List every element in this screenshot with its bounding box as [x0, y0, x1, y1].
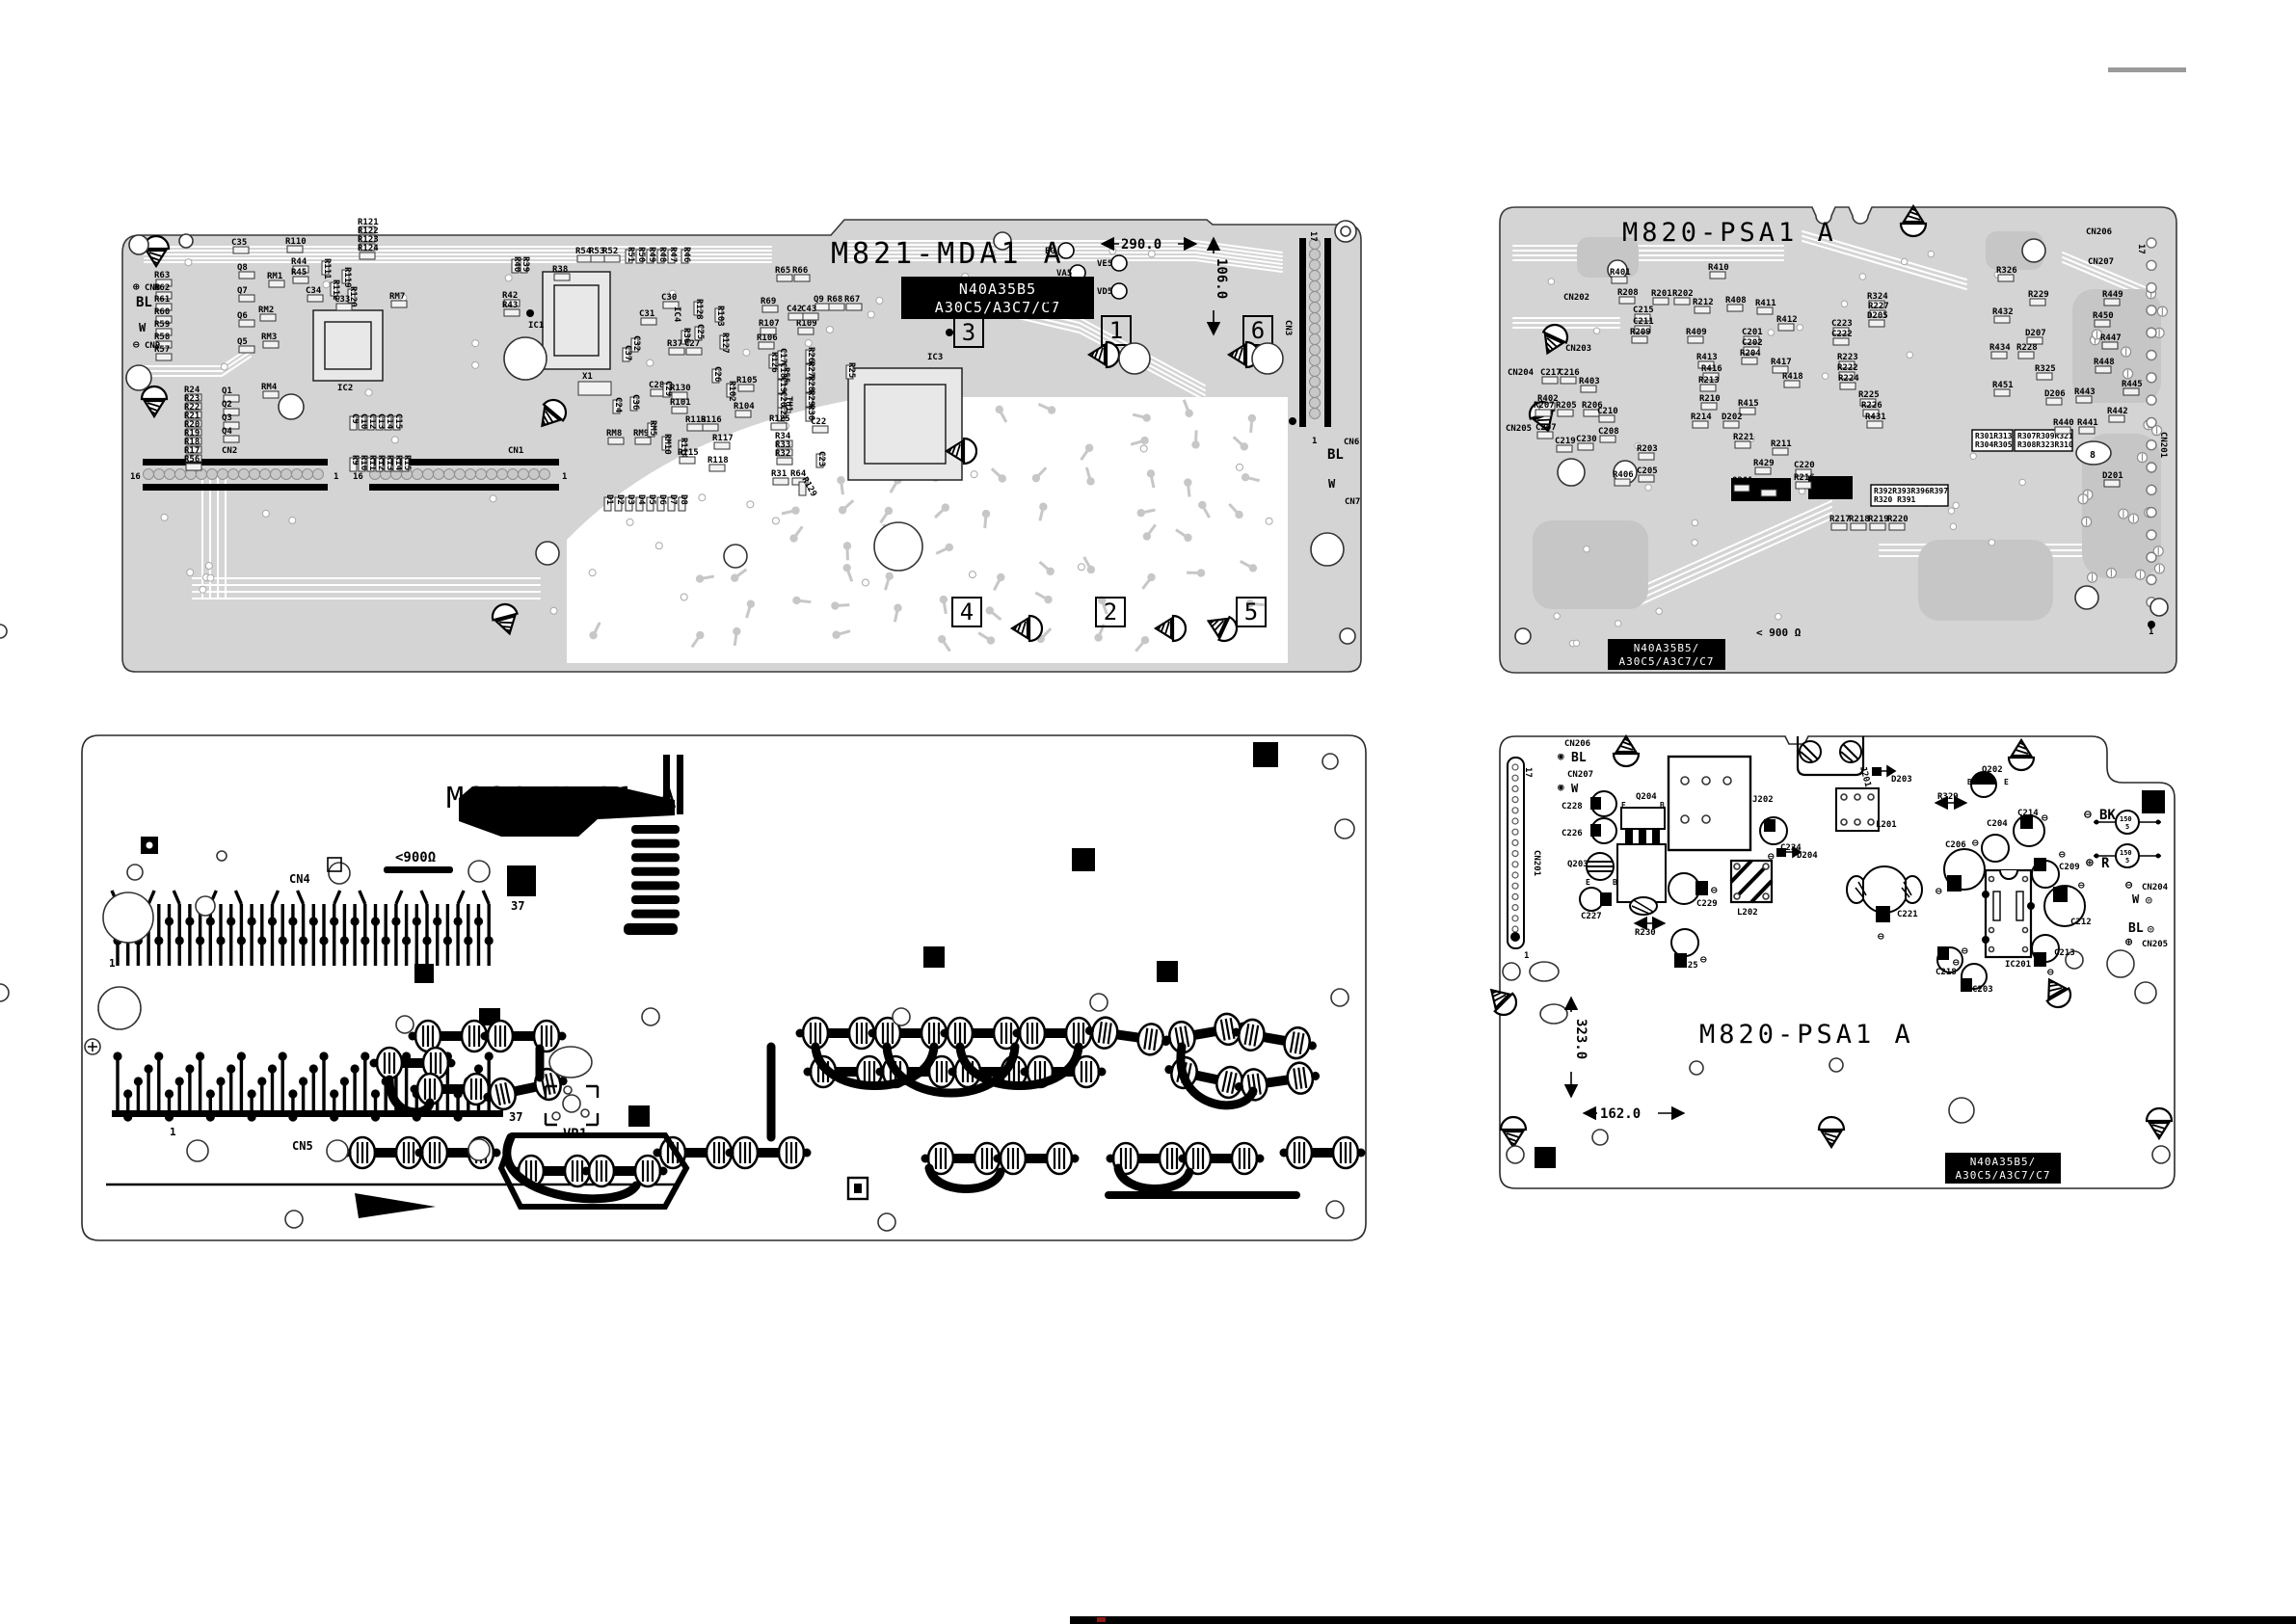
svg-text:R40: R40 — [512, 256, 521, 272]
svg-text:R435R436: R435R436 — [1811, 479, 1849, 488]
svg-text:C206: C206 — [1945, 840, 1966, 850]
svg-text:RM9: RM9 — [633, 429, 649, 439]
svg-text:R105: R105 — [736, 376, 758, 386]
svg-text:C211: C211 — [1633, 317, 1654, 327]
svg-text:⊖: ⊖ — [1936, 885, 1942, 897]
svg-text:C221: C221 — [1897, 910, 1918, 919]
svg-text:⊖: ⊖ — [133, 338, 140, 351]
svg-text:R403: R403 — [1579, 377, 1600, 386]
svg-text:⊖: ⊖ — [2125, 878, 2133, 892]
svg-text:B: B — [1967, 778, 1972, 786]
svg-text:CN4: CN4 — [289, 872, 310, 886]
svg-text:VA5: VA5 — [1056, 269, 1072, 279]
svg-text:3: 3 — [962, 319, 975, 346]
svg-text:C43: C43 — [801, 305, 816, 314]
svg-text:Q202: Q202 — [1982, 765, 2003, 775]
ohm-note-c: <900Ω — [395, 850, 436, 865]
svg-text:R442: R442 — [2107, 407, 2128, 416]
svg-text:R227: R227 — [1868, 302, 1889, 311]
svg-text:B: B — [1660, 801, 1665, 810]
svg-text:RM4: RM4 — [261, 383, 278, 392]
svg-text:C216: C216 — [1559, 368, 1580, 378]
svg-text:C34: C34 — [306, 286, 322, 296]
svg-text:BL: BL — [136, 295, 152, 310]
svg-text:RM5: RM5 — [648, 420, 657, 436]
svg-text:R230: R230 — [1635, 928, 1656, 938]
svg-text:C22: C22 — [811, 417, 826, 427]
svg-text:D6: D6 — [657, 494, 667, 505]
svg-text:C223: C223 — [1831, 319, 1853, 329]
page-bottom-bar — [1070, 1616, 2296, 1624]
svg-text:R111: R111 — [322, 258, 332, 280]
svg-text:R49: R49 — [647, 247, 656, 262]
svg-text:R392R393R396R397: R392R393R396R397 — [1874, 487, 1948, 495]
svg-text:C28: C28 — [649, 381, 664, 390]
ic-chip-ic2 — [313, 310, 383, 381]
svg-text:W: W — [1328, 477, 1336, 491]
svg-text:R219: R219 — [1868, 515, 1889, 524]
svg-text:R63: R63 — [154, 271, 170, 280]
svg-text:R229: R229 — [2028, 290, 2049, 300]
svg-text:IC4: IC4 — [672, 306, 681, 323]
svg-text:R308R323R310: R308R323R310 — [2017, 440, 2073, 449]
svg-text:162.0: 162.0 — [1600, 1106, 1641, 1122]
svg-text:R220: R220 — [1887, 515, 1909, 524]
svg-text:CN207: CN207 — [2088, 257, 2114, 267]
svg-text:CN8: CN8 — [145, 283, 160, 293]
svg-text:R412: R412 — [1776, 315, 1798, 325]
svg-text:R60: R60 — [154, 307, 170, 317]
svg-text:D7: D7 — [668, 494, 678, 505]
svg-text:R44: R44 — [291, 257, 307, 267]
svg-text:CN201: CN201 — [1532, 850, 1541, 876]
svg-text:◎: ◎ — [2148, 922, 2154, 935]
svg-text:C218: C218 — [1936, 968, 1957, 977]
svg-text:R45: R45 — [291, 268, 307, 278]
svg-text:C208: C208 — [1598, 427, 1619, 437]
svg-text:Q5: Q5 — [237, 337, 248, 347]
svg-text:R28: R28 — [806, 376, 815, 391]
svg-text:R42: R42 — [502, 291, 518, 301]
board-title-b: M820-PSA1 A — [1622, 218, 1837, 248]
svg-text:C229: C229 — [1696, 899, 1718, 909]
svg-text:DG: DG — [1044, 296, 1055, 306]
svg-text:R218: R218 — [1849, 515, 1870, 524]
svg-text:1: 1 — [562, 472, 567, 482]
svg-text:R325: R325 — [2035, 364, 2056, 374]
svg-text:R26: R26 — [806, 347, 815, 362]
svg-text:D8: D8 — [679, 494, 688, 505]
svg-text:CN5: CN5 — [292, 1139, 313, 1153]
svg-text:4: 4 — [960, 599, 974, 626]
svg-text:W: W — [139, 321, 147, 334]
svg-text:⊖: ⊖ — [2042, 812, 2048, 824]
svg-text:R15: R15 — [402, 455, 412, 470]
svg-text:⊖: ⊖ — [1972, 837, 1979, 849]
svg-text:L201: L201 — [1876, 820, 1897, 830]
svg-text:CN3: CN3 — [1283, 320, 1293, 335]
svg-text:R66: R66 — [792, 266, 808, 276]
svg-text:17: 17 — [1523, 767, 1533, 778]
svg-text:C33: C33 — [334, 295, 350, 305]
svg-text:BK: BK — [2099, 808, 2116, 823]
svg-text:D5: D5 — [647, 494, 656, 505]
svg-text:R445: R445 — [2122, 380, 2143, 389]
svg-text:R102: R102 — [727, 381, 736, 402]
svg-text:C225: C225 — [1677, 961, 1698, 971]
svg-text:C219: C219 — [1555, 437, 1576, 446]
svg-text:Q204: Q204 — [1636, 792, 1657, 802]
svg-text:AG: AG — [1045, 281, 1055, 291]
svg-text:A30C5/A3C7/C7: A30C5/A3C7/C7 — [935, 299, 1060, 316]
svg-text:IC2: IC2 — [337, 384, 353, 393]
svg-text:CN9: CN9 — [145, 341, 160, 351]
svg-text:R447: R447 — [2100, 333, 2122, 343]
svg-text:C25: C25 — [695, 324, 705, 339]
svg-text:2: 2 — [1104, 599, 1117, 626]
svg-text:C18: C18 — [778, 362, 788, 378]
svg-text:C30: C30 — [661, 293, 677, 303]
svg-text:R: R — [2101, 856, 2110, 871]
board-title-c: M821-MDA1 A — [446, 782, 681, 815]
svg-text:R448: R448 — [2094, 358, 2115, 367]
svg-text:R43: R43 — [502, 301, 518, 310]
svg-text:R450: R450 — [2093, 311, 2114, 321]
svg-text:R110: R110 — [285, 237, 307, 247]
svg-text:W: W — [2132, 892, 2140, 906]
svg-text:CN1: CN1 — [508, 446, 523, 456]
svg-text:C37: C37 — [623, 345, 632, 360]
svg-text:R228: R228 — [2016, 343, 2038, 353]
svg-text:R441: R441 — [2077, 418, 2098, 428]
svg-text:CN204: CN204 — [2142, 883, 2169, 892]
pcb-board-m821-mda1-solder-side: M821-MDA1 A <900Ω CN4137CN5137VR1 — [0, 735, 1366, 1240]
svg-text:B: B — [1613, 878, 1617, 887]
svg-text:R208: R208 — [1617, 288, 1639, 298]
svg-text:8: 8 — [2090, 450, 2096, 461]
svg-text:R27: R27 — [806, 361, 815, 377]
svg-text:⊖: ⊖ — [1878, 930, 1884, 943]
svg-text:Q1: Q1 — [222, 386, 232, 396]
svg-text:C215: C215 — [1633, 306, 1654, 315]
svg-text:R326: R326 — [1996, 266, 2017, 276]
svg-text:C42: C42 — [787, 305, 802, 314]
svg-text:RM7: RM7 — [389, 292, 405, 302]
svg-text:37: 37 — [511, 899, 524, 913]
page-bottom-speck — [1097, 1617, 1106, 1622]
svg-text:150: 150 — [2120, 849, 2132, 857]
svg-text:R118: R118 — [707, 456, 729, 466]
svg-text:IC1: IC1 — [528, 321, 544, 331]
svg-text:N40A35B5/: N40A35B5/ — [1634, 642, 1700, 654]
svg-text:R211: R211 — [1771, 439, 1792, 449]
svg-text:EG: EG — [1045, 247, 1055, 256]
svg-text:R409: R409 — [1686, 328, 1707, 337]
svg-text:D202: D202 — [1722, 413, 1743, 422]
svg-text:⊖: ⊖ — [2047, 966, 2054, 978]
svg-text:CN205: CN205 — [2142, 940, 2168, 949]
svg-text:VD5: VD5 — [1097, 287, 1112, 297]
svg-text:R59: R59 — [154, 320, 170, 330]
svg-text:C230: C230 — [1576, 435, 1597, 444]
svg-text:◎: ◎ — [2146, 893, 2152, 906]
svg-text:C204: C204 — [1987, 819, 2008, 829]
svg-text:Q3: Q3 — [222, 413, 232, 423]
svg-text:R65: R65 — [775, 266, 790, 276]
svg-text:R443: R443 — [2074, 387, 2096, 397]
svg-text:D1: D1 — [604, 494, 614, 505]
svg-text:R203: R203 — [1637, 444, 1658, 454]
svg-text:R38: R38 — [552, 265, 568, 275]
svg-text:R107: R107 — [759, 319, 780, 329]
svg-text:R50: R50 — [636, 247, 646, 262]
svg-text:⊖: ⊖ — [1768, 850, 1775, 863]
svg-text:1: 1 — [2149, 627, 2153, 637]
svg-text:D201: D201 — [2102, 471, 2123, 481]
svg-text:R128: R128 — [694, 299, 704, 320]
svg-text:R119: R119 — [342, 267, 352, 288]
svg-text:R449: R449 — [2102, 290, 2123, 300]
svg-text:C35: C35 — [231, 238, 247, 248]
svg-text:Q4: Q4 — [222, 427, 232, 437]
svg-text:1: 1 — [1524, 951, 1529, 961]
svg-text:R32: R32 — [775, 449, 790, 459]
svg-text:◉: ◉ — [1558, 750, 1564, 762]
svg-text:R217: R217 — [1829, 515, 1851, 524]
svg-text:R329: R329 — [1937, 792, 1959, 802]
svg-text:X1: X1 — [582, 372, 593, 382]
svg-text:R56: R56 — [184, 455, 200, 465]
svg-text:R212: R212 — [1693, 298, 1714, 307]
svg-text:R226: R226 — [1861, 401, 1882, 411]
svg-text:VR1: VR1 — [563, 1127, 587, 1142]
svg-text:C26: C26 — [712, 366, 722, 382]
svg-text:R29: R29 — [806, 390, 815, 406]
svg-text:R116: R116 — [701, 415, 722, 425]
svg-text:C222: C222 — [1831, 330, 1853, 339]
svg-text:R117: R117 — [712, 434, 734, 443]
svg-text:R410: R410 — [1708, 263, 1729, 273]
svg-text:R221: R221 — [1733, 433, 1754, 442]
svg-text:R101: R101 — [670, 398, 691, 408]
svg-text:1: 1 — [1109, 317, 1123, 344]
svg-text:C202: C202 — [1742, 338, 1763, 348]
svg-text:R106: R106 — [757, 333, 778, 343]
svg-text:R210: R210 — [1699, 394, 1721, 404]
svg-text:⊖: ⊖ — [2084, 808, 2092, 822]
svg-text:⊕: ⊕ — [133, 280, 140, 293]
svg-text:R67: R67 — [844, 295, 860, 305]
svg-text:R103: R103 — [715, 306, 725, 327]
svg-text:37: 37 — [509, 1110, 522, 1124]
svg-text:6: 6 — [1251, 317, 1265, 344]
svg-text:C36: C36 — [630, 394, 640, 410]
svg-text:⊕: ⊕ — [2086, 856, 2094, 870]
svg-text:Q6: Q6 — [237, 311, 248, 321]
page-corner-mark — [2108, 67, 2186, 72]
svg-text:J202: J202 — [1752, 795, 1774, 805]
svg-text:16: 16 — [130, 472, 141, 482]
svg-text:R215: R215 — [1759, 481, 1780, 491]
svg-text:C15: C15 — [393, 413, 403, 429]
svg-text:E: E — [1621, 801, 1626, 810]
svg-text:⊖: ⊖ — [1700, 953, 1707, 966]
svg-text:BL: BL — [1327, 447, 1344, 463]
svg-text:R432: R432 — [1992, 307, 2014, 317]
crystal-x1 — [578, 382, 611, 395]
part-number-label-b: N40A35B5/ A30C5/A3C7/C7 — [1608, 639, 1725, 670]
svg-text:◉: ◉ — [1558, 781, 1564, 793]
svg-text:C23: C23 — [816, 451, 826, 466]
svg-text:150: 150 — [2120, 815, 2132, 823]
svg-text:D2: D2 — [615, 494, 625, 505]
svg-text:R37: R37 — [667, 339, 682, 349]
svg-text:C212: C212 — [2070, 918, 2092, 927]
svg-text:R401: R401 — [1610, 268, 1631, 278]
svg-text:Q8: Q8 — [237, 263, 248, 273]
svg-text:R406: R406 — [1613, 470, 1634, 480]
svg-text:R61: R61 — [154, 295, 170, 305]
svg-text:290.0: 290.0 — [1121, 237, 1161, 253]
svg-text:C226: C226 — [1562, 829, 1583, 839]
svg-text:R202: R202 — [1672, 289, 1694, 299]
svg-text:CN204: CN204 — [1508, 368, 1535, 378]
svg-text:CN2: CN2 — [222, 446, 237, 456]
svg-text:323.0: 323.0 — [1573, 1019, 1589, 1059]
svg-text:R205: R205 — [1556, 401, 1577, 411]
svg-text:R204: R204 — [1740, 349, 1761, 359]
svg-text:R224: R224 — [1838, 374, 1859, 384]
svg-text:C214: C214 — [2017, 809, 2039, 818]
svg-text:CN207: CN207 — [1567, 770, 1593, 780]
svg-text:VE5: VE5 — [1097, 259, 1112, 269]
svg-text:IC3: IC3 — [927, 353, 943, 362]
svg-text:⊖: ⊖ — [2059, 848, 2066, 861]
svg-text:C17: C17 — [778, 348, 788, 363]
svg-text:⊖: ⊖ — [1962, 945, 1968, 957]
pcb-board-m820-psa1-component-side: R301R313 R304R305 R307R309R321 R308R323R… — [1500, 206, 2176, 673]
svg-text:R214: R214 — [1691, 413, 1712, 422]
svg-text:CN205: CN205 — [1506, 424, 1532, 434]
svg-text:5: 5 — [2125, 857, 2129, 865]
svg-text:D4: D4 — [636, 494, 646, 505]
svg-text:RM8: RM8 — [606, 429, 622, 439]
svg-text:D3: D3 — [626, 494, 635, 505]
svg-text:C27: C27 — [684, 339, 700, 349]
connector-cn2 — [143, 459, 328, 491]
svg-text:CN7: CN7 — [1345, 497, 1360, 507]
svg-text:D205: D205 — [1867, 311, 1888, 321]
svg-text:IC201: IC201 — [2005, 960, 2031, 970]
svg-text:Q203: Q203 — [1567, 860, 1589, 869]
svg-text:R68: R68 — [827, 295, 842, 305]
svg-text:R201: R201 — [1651, 289, 1672, 299]
svg-text:N40A35B5: N40A35B5 — [959, 280, 1036, 298]
svg-text:Q201: Q201 — [1732, 476, 1753, 486]
svg-text:⊕: ⊕ — [2125, 935, 2133, 948]
svg-text:R418: R418 — [1782, 372, 1803, 382]
svg-text:C227: C227 — [1581, 912, 1602, 921]
svg-text:⊖: ⊖ — [2078, 879, 2085, 892]
svg-text:1: 1 — [334, 472, 338, 482]
svg-text:C19: C19 — [778, 377, 788, 392]
svg-text:CN6: CN6 — [1344, 438, 1359, 447]
svg-text:R124: R124 — [358, 244, 379, 253]
svg-text:C213: C213 — [2054, 948, 2075, 958]
board-title-a: M821-MDA1 A — [831, 237, 1065, 271]
svg-text:E: E — [2004, 778, 2009, 786]
part-number-label-d: N40A35B5/ A30C5/A3C7/C7 — [1945, 1153, 2061, 1184]
svg-text:R48: R48 — [657, 247, 667, 262]
svg-text:R31: R31 — [771, 469, 787, 479]
svg-text:C228: C228 — [1562, 802, 1583, 812]
ic-chip-ic1 — [543, 272, 610, 369]
svg-text:CN206: CN206 — [2086, 227, 2112, 237]
svg-text:D206: D206 — [2044, 389, 2066, 399]
pcb-board-m821-mda1-component-side: 290.0 106.0 3 1 6 4 2 5 — [0, 218, 1361, 672]
svg-text:C24: C24 — [613, 397, 623, 413]
svg-text:R223: R223 — [1837, 353, 1858, 362]
svg-text:5: 5 — [1244, 599, 1258, 626]
svg-text:R104: R104 — [734, 402, 755, 412]
svg-text:R437R438: R437R438 — [1811, 489, 1849, 497]
svg-text:C210: C210 — [1597, 407, 1618, 416]
svg-text:R25: R25 — [846, 362, 856, 378]
pcb-diagram-canvas: 290.0 106.0 3 1 6 4 2 5 — [0, 0, 2296, 1624]
svg-text:BL: BL — [2128, 921, 2144, 936]
svg-text:R417: R417 — [1771, 358, 1792, 367]
svg-text:C201: C201 — [1742, 328, 1763, 337]
svg-text:A30C5/A3C7/C7: A30C5/A3C7/C7 — [1618, 655, 1714, 668]
svg-text:R451: R451 — [1992, 381, 2014, 390]
svg-text:D207: D207 — [2025, 329, 2046, 338]
svg-text:R434: R434 — [1989, 343, 2011, 353]
svg-text:R213: R213 — [1698, 376, 1720, 386]
svg-text:W: W — [1571, 782, 1579, 795]
svg-text:R216: R216 — [1794, 473, 1815, 483]
svg-text:R416: R416 — [1701, 364, 1722, 374]
svg-text:RM2: RM2 — [258, 306, 274, 315]
svg-text:R413: R413 — [1696, 353, 1718, 362]
svg-text:R324: R324 — [1867, 292, 1888, 302]
svg-text:R115: R115 — [678, 448, 699, 458]
ic-chip-ic3 — [848, 368, 962, 480]
svg-text:Q2: Q2 — [222, 400, 232, 410]
svg-text:R69: R69 — [761, 297, 776, 306]
svg-text:1: 1 — [170, 1126, 176, 1138]
board-title-d: M820-PSA1 A — [1699, 1020, 1914, 1050]
svg-text:L202: L202 — [1737, 908, 1758, 918]
svg-text:1: 1 — [1312, 437, 1317, 446]
svg-text:⊖: ⊖ — [1711, 884, 1718, 896]
pcb-layout-page: 290.0 106.0 3 1 6 4 2 5 — [0, 0, 2296, 1624]
svg-text:R51: R51 — [626, 247, 635, 262]
svg-text:R415: R415 — [1738, 399, 1759, 409]
svg-text:R301R313: R301R313 — [1975, 432, 2013, 440]
svg-text:RM1: RM1 — [267, 272, 282, 281]
svg-text:RM3: RM3 — [261, 333, 277, 342]
svg-text:R209: R209 — [1630, 328, 1651, 337]
svg-text:R130: R130 — [670, 384, 691, 393]
part-number-label-a: N40A35B5 A30C5/A3C7/C7 — [901, 277, 1094, 319]
svg-text:R125: R125 — [769, 414, 790, 424]
svg-text:D203: D203 — [1891, 775, 1912, 785]
svg-text:R222: R222 — [1837, 363, 1858, 373]
svg-text:E: E — [1586, 878, 1590, 887]
svg-text:BL: BL — [1571, 751, 1587, 765]
svg-text:C207: C207 — [1535, 423, 1557, 433]
svg-text:CN203: CN203 — [1565, 344, 1591, 354]
